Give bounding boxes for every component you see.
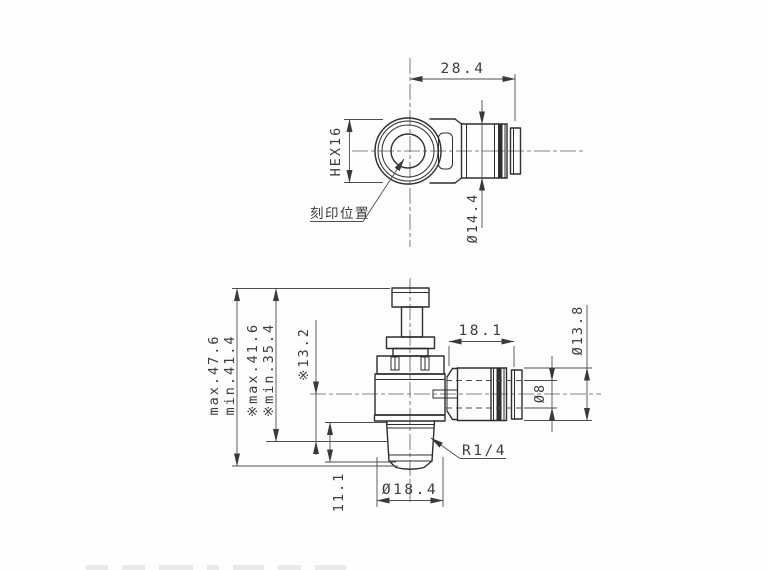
hex-section [377,356,444,374]
drawing-canvas: 28.4 HEX16 Ø14.4 刻印位置 [0,0,768,570]
dim-label-hex-flats: HEX16 [328,126,344,177]
marking-position-label: 刻印位置 [310,206,370,222]
front-view: max.47.6 min.41.4 ※max.41.6 ※min.35.4 ※1… [206,278,601,512]
dim-label-tube-diameter: Ø8 [532,383,548,403]
dim-label-overall-max: max.47.6 [206,334,222,415]
needle-knob [387,288,435,356]
lock-nut [387,337,435,349]
cropped-footer-artifact [86,565,346,570]
top-view: 28.4 HEX16 Ø14.4 刻印位置 [310,58,584,247]
dim-label-fitting-length: 18.1 [459,323,504,339]
dim-label-thread-length: 11.1 [331,472,347,513]
dim-center-height: ※13.2 [296,320,316,455]
dim-label-overall-width: 28.4 [441,61,486,77]
knob-neck [393,349,428,357]
dim-label-fitting-diameter: Ø13.8 [570,305,586,356]
knob-stem [402,307,423,337]
dim-thread-length: 11.1 [325,423,396,513]
dim-label-star-min: ※min.35.4 [261,323,277,417]
ring-band [498,124,503,178]
marking-position-callout: 刻印位置 [310,159,404,222]
dim-label-thread-spec: R1/4 [462,443,507,459]
ring-band-front [497,368,502,421]
dim-label-body-diameter: Ø14.4 [465,193,481,244]
dim-label-thread-diameter: Ø18.4 [382,482,438,498]
dim-label-star-max: ※max.41.6 [245,323,261,417]
release-ring-front [512,370,523,419]
dim-label-center-height: ※13.2 [296,327,312,381]
dim-top-overall-width: 28.4 [410,61,515,121]
dim-fitting-length: 18.1 [449,323,514,367]
dim-top-body-diameter: Ø14.4 [465,100,482,243]
technical-drawing-page: 28.4 HEX16 Ø14.4 刻印位置 [0,0,768,570]
dim-label-overall-min: min.41.4 [222,334,238,415]
thread-spec-callout: R1/4 [431,438,507,459]
